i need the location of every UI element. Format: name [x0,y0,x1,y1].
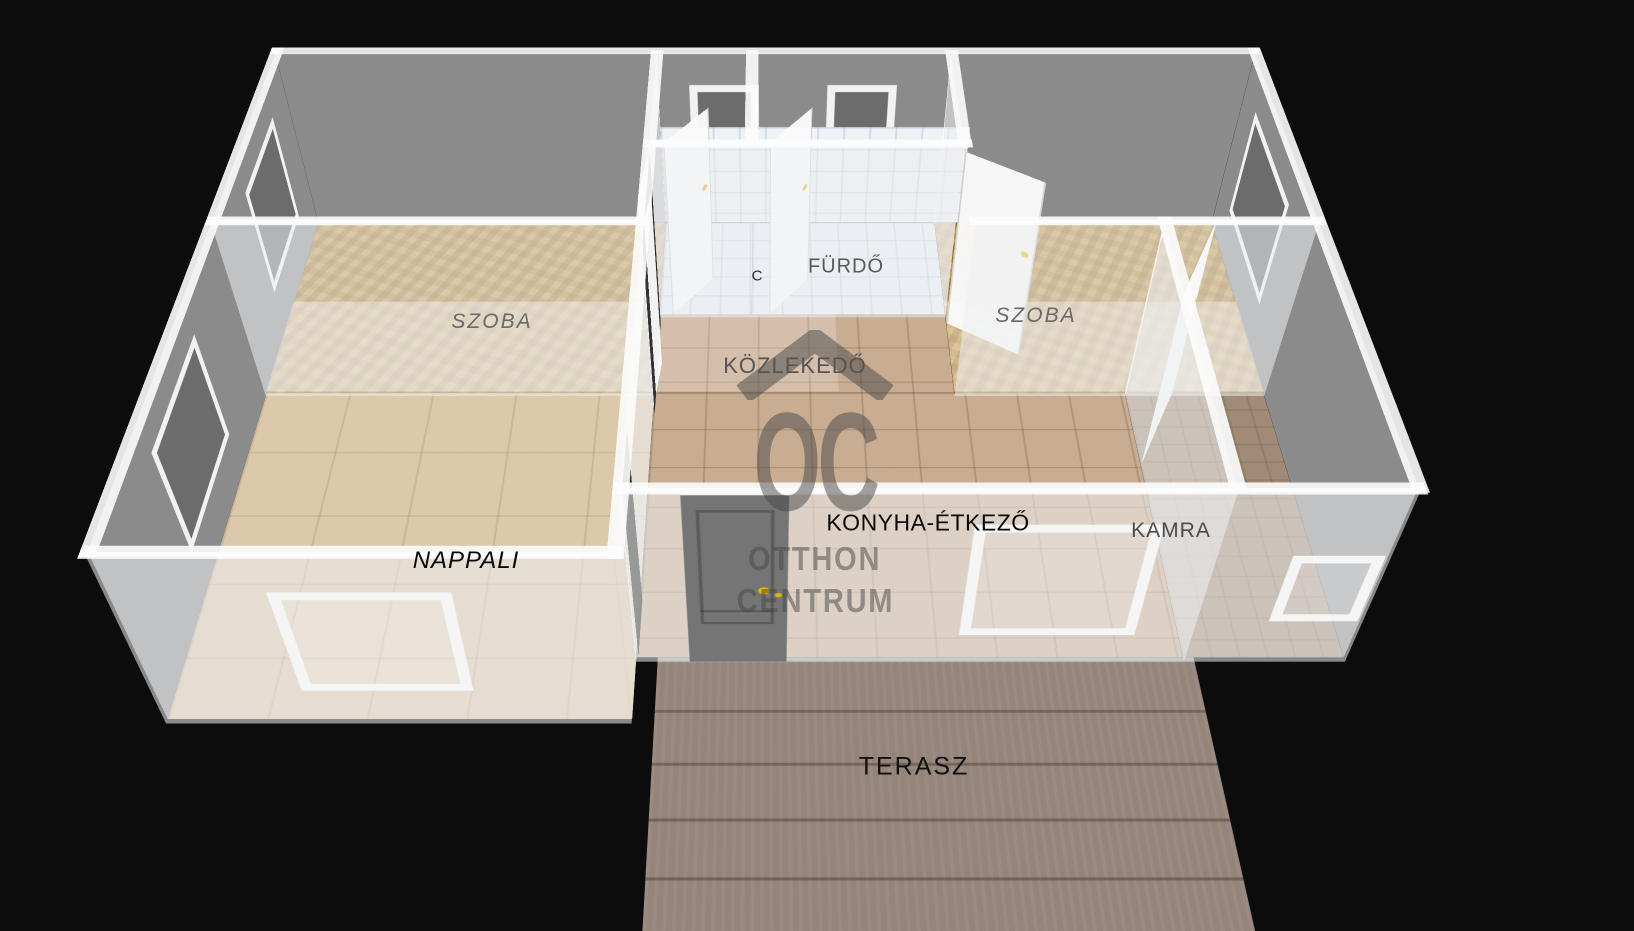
entry-door-knob-icon [758,587,769,594]
entry-door-panel [695,510,774,624]
wall-szoba-left-front [210,219,654,396]
window-kamra-front [1269,556,1386,621]
wall-front-konyha [619,488,1422,662]
entry-door [680,492,789,664]
window-nappali-front [266,592,473,690]
entry-door-rail [700,610,774,612]
terrace-floor [641,657,1259,931]
floor-haze-kozlekedo [654,313,839,391]
window-konyha-front [959,525,1165,635]
entry-door-keyhole-icon [775,593,782,597]
floor-plan-screenshot: OC OTTHON CENTRUM SZOBA SZOBA C FÜRDŐ KÖ… [0,0,1634,931]
floor-plan-3d-scene [63,193,1467,931]
wall-wc-furdo-front [648,142,965,318]
wall-front-nappali [84,552,632,724]
wall-cap [745,50,759,146]
